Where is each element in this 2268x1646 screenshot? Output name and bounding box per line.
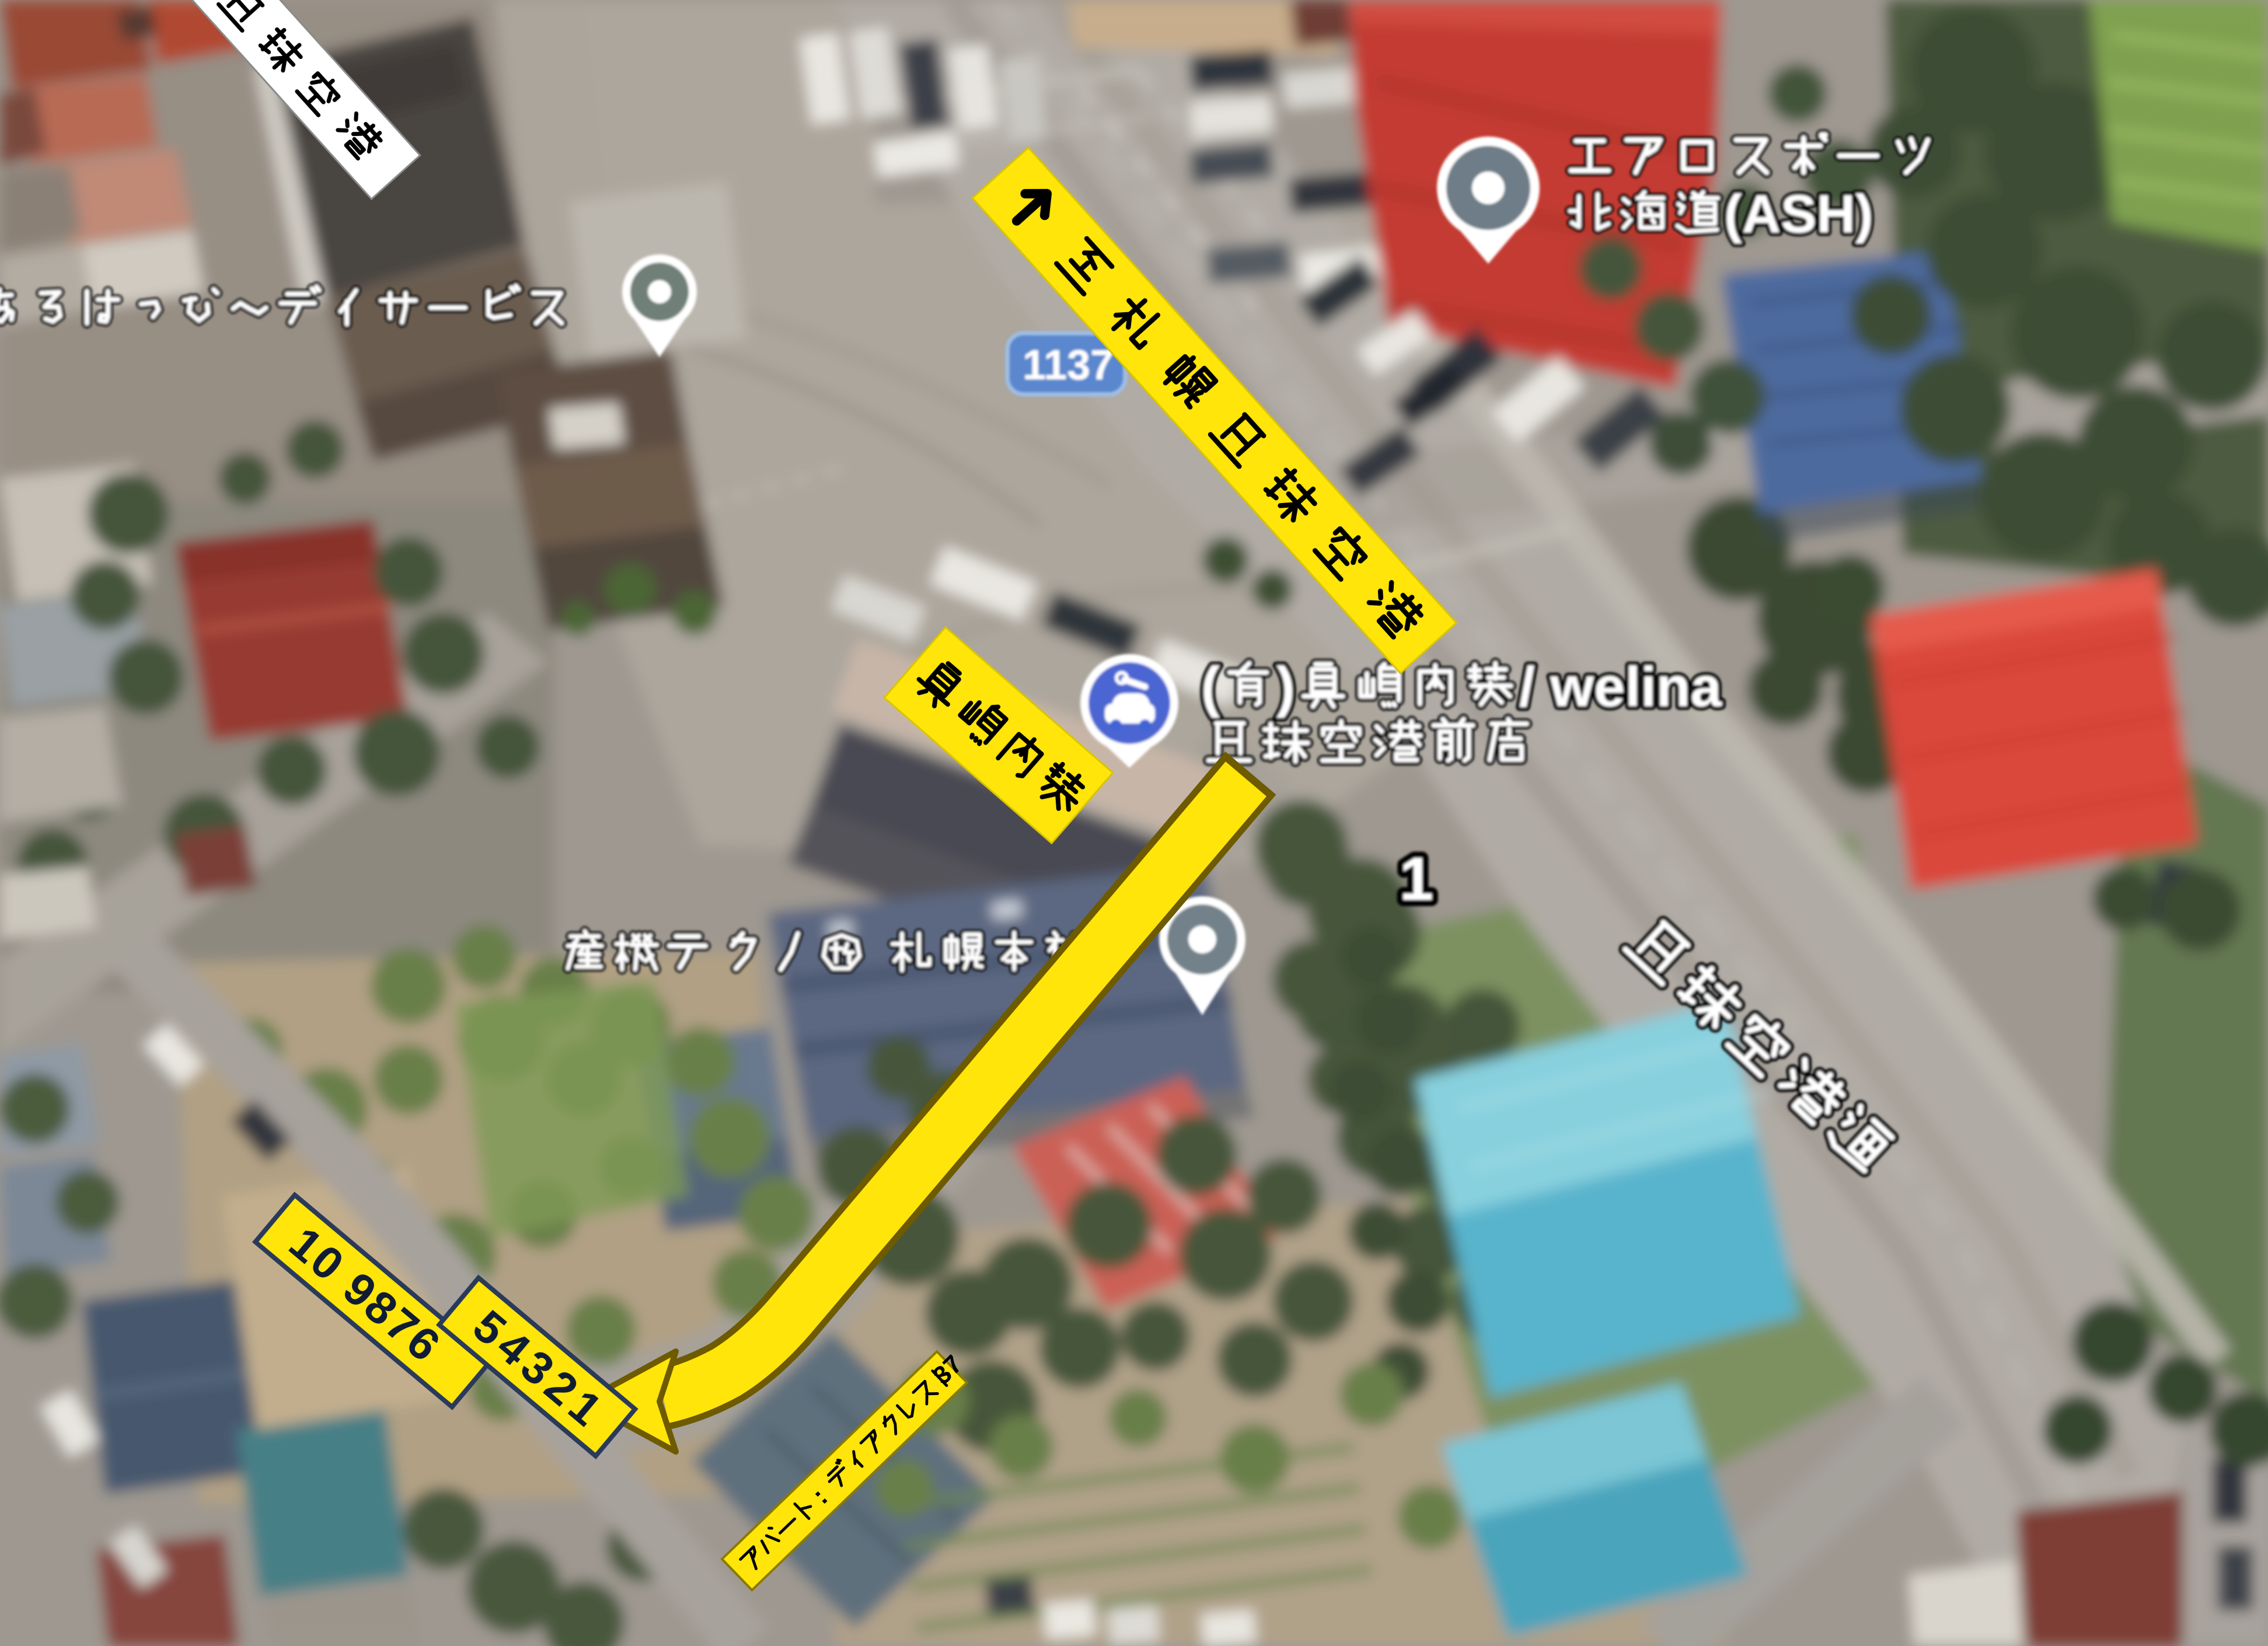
svg-text:(ASH): (ASH) [1724,184,1873,244]
svg-text:1: 1 [1400,845,1433,913]
svg-text:/ welina: / welina [1519,656,1722,718]
svg-text:): ) [1276,656,1295,718]
svg-text:(: ( [1201,656,1220,718]
svg-text:1137: 1137 [1023,342,1114,389]
